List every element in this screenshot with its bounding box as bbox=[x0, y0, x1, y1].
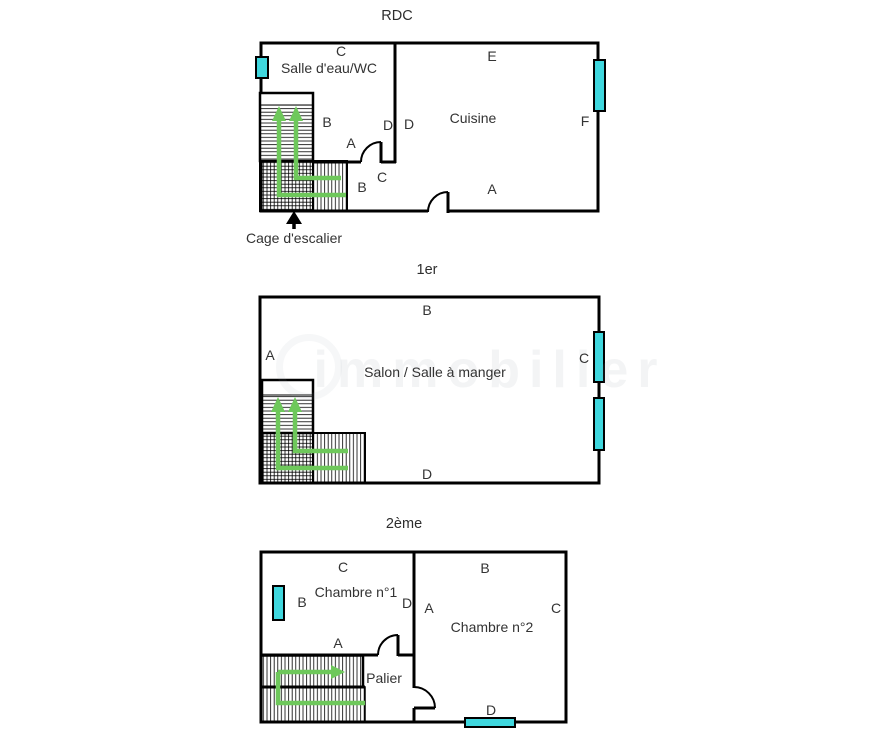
wall-label: F bbox=[581, 114, 590, 128]
door-icon bbox=[414, 687, 435, 708]
wall-label: B bbox=[322, 115, 331, 129]
wall-label: C bbox=[338, 560, 348, 574]
door-gap bbox=[361, 155, 381, 168]
wall-label: A bbox=[333, 636, 342, 650]
door-gap bbox=[428, 205, 448, 218]
floor-title-2eme: 2ème bbox=[386, 517, 422, 532]
wall-label: B bbox=[297, 595, 306, 609]
wall-label: D bbox=[404, 117, 414, 131]
wall-label: C bbox=[551, 601, 561, 615]
wall-label: A bbox=[424, 601, 433, 615]
floor-title-1er: 1er bbox=[417, 263, 438, 278]
room-name-chambre1: Chambre n°1 bbox=[315, 585, 398, 599]
floor-plan-page: immobilier RDC C Salle d'eau/WC E B A D … bbox=[0, 0, 891, 746]
cage-escalier-arrow-icon bbox=[286, 211, 302, 229]
window-icon bbox=[256, 57, 268, 78]
wall-label: C bbox=[377, 170, 387, 184]
room-name-palier: Palier bbox=[366, 671, 402, 685]
wall-label: B bbox=[480, 561, 489, 575]
deuxieme-etage-plan bbox=[261, 552, 566, 727]
wall-label: D bbox=[486, 703, 496, 717]
wall-label: D bbox=[402, 596, 412, 610]
wall-label: B bbox=[422, 303, 431, 317]
window-icon bbox=[594, 398, 604, 450]
window-icon bbox=[273, 586, 284, 620]
wall-label: A bbox=[346, 136, 355, 150]
annotation-cage-escalier: Cage d'escalier bbox=[246, 231, 342, 245]
wall-label: D bbox=[383, 118, 393, 132]
room-name-chambre2: Chambre n°2 bbox=[451, 620, 534, 634]
wall-label: D bbox=[422, 467, 432, 481]
window-icon bbox=[594, 60, 605, 111]
wall-label: A bbox=[265, 348, 274, 362]
wall-label: E bbox=[487, 49, 496, 63]
wall-label: A bbox=[487, 182, 496, 196]
window-icon bbox=[465, 718, 515, 727]
wall-label: B bbox=[357, 180, 366, 194]
floor-title-rdc: RDC bbox=[381, 9, 412, 24]
room-name-salle-eau: Salle d'eau/WC bbox=[281, 61, 377, 75]
wall-label: C bbox=[579, 351, 589, 365]
room-name-salon: Salon / Salle à manger bbox=[364, 365, 506, 379]
room-name-cuisine: Cuisine bbox=[450, 111, 497, 125]
door-icon bbox=[378, 635, 398, 656]
wall-label: C bbox=[336, 44, 346, 58]
